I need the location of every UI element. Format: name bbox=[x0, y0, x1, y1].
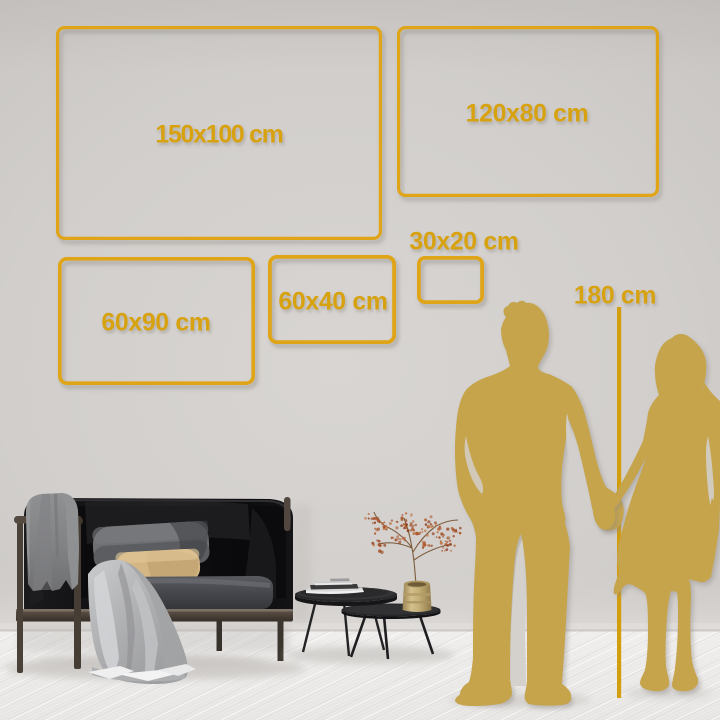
svg-text:120x80 cm: 120x80 cm bbox=[466, 101, 589, 128]
svg-text:150x100 cm: 150x100 cm bbox=[155, 122, 282, 149]
svg-text:180 cm: 180 cm bbox=[574, 283, 656, 310]
svg-text:30x20 cm: 30x20 cm bbox=[409, 229, 518, 256]
svg-text:60x90 cm: 60x90 cm bbox=[101, 310, 210, 337]
svg-text:60x40 cm: 60x40 cm bbox=[278, 289, 387, 316]
